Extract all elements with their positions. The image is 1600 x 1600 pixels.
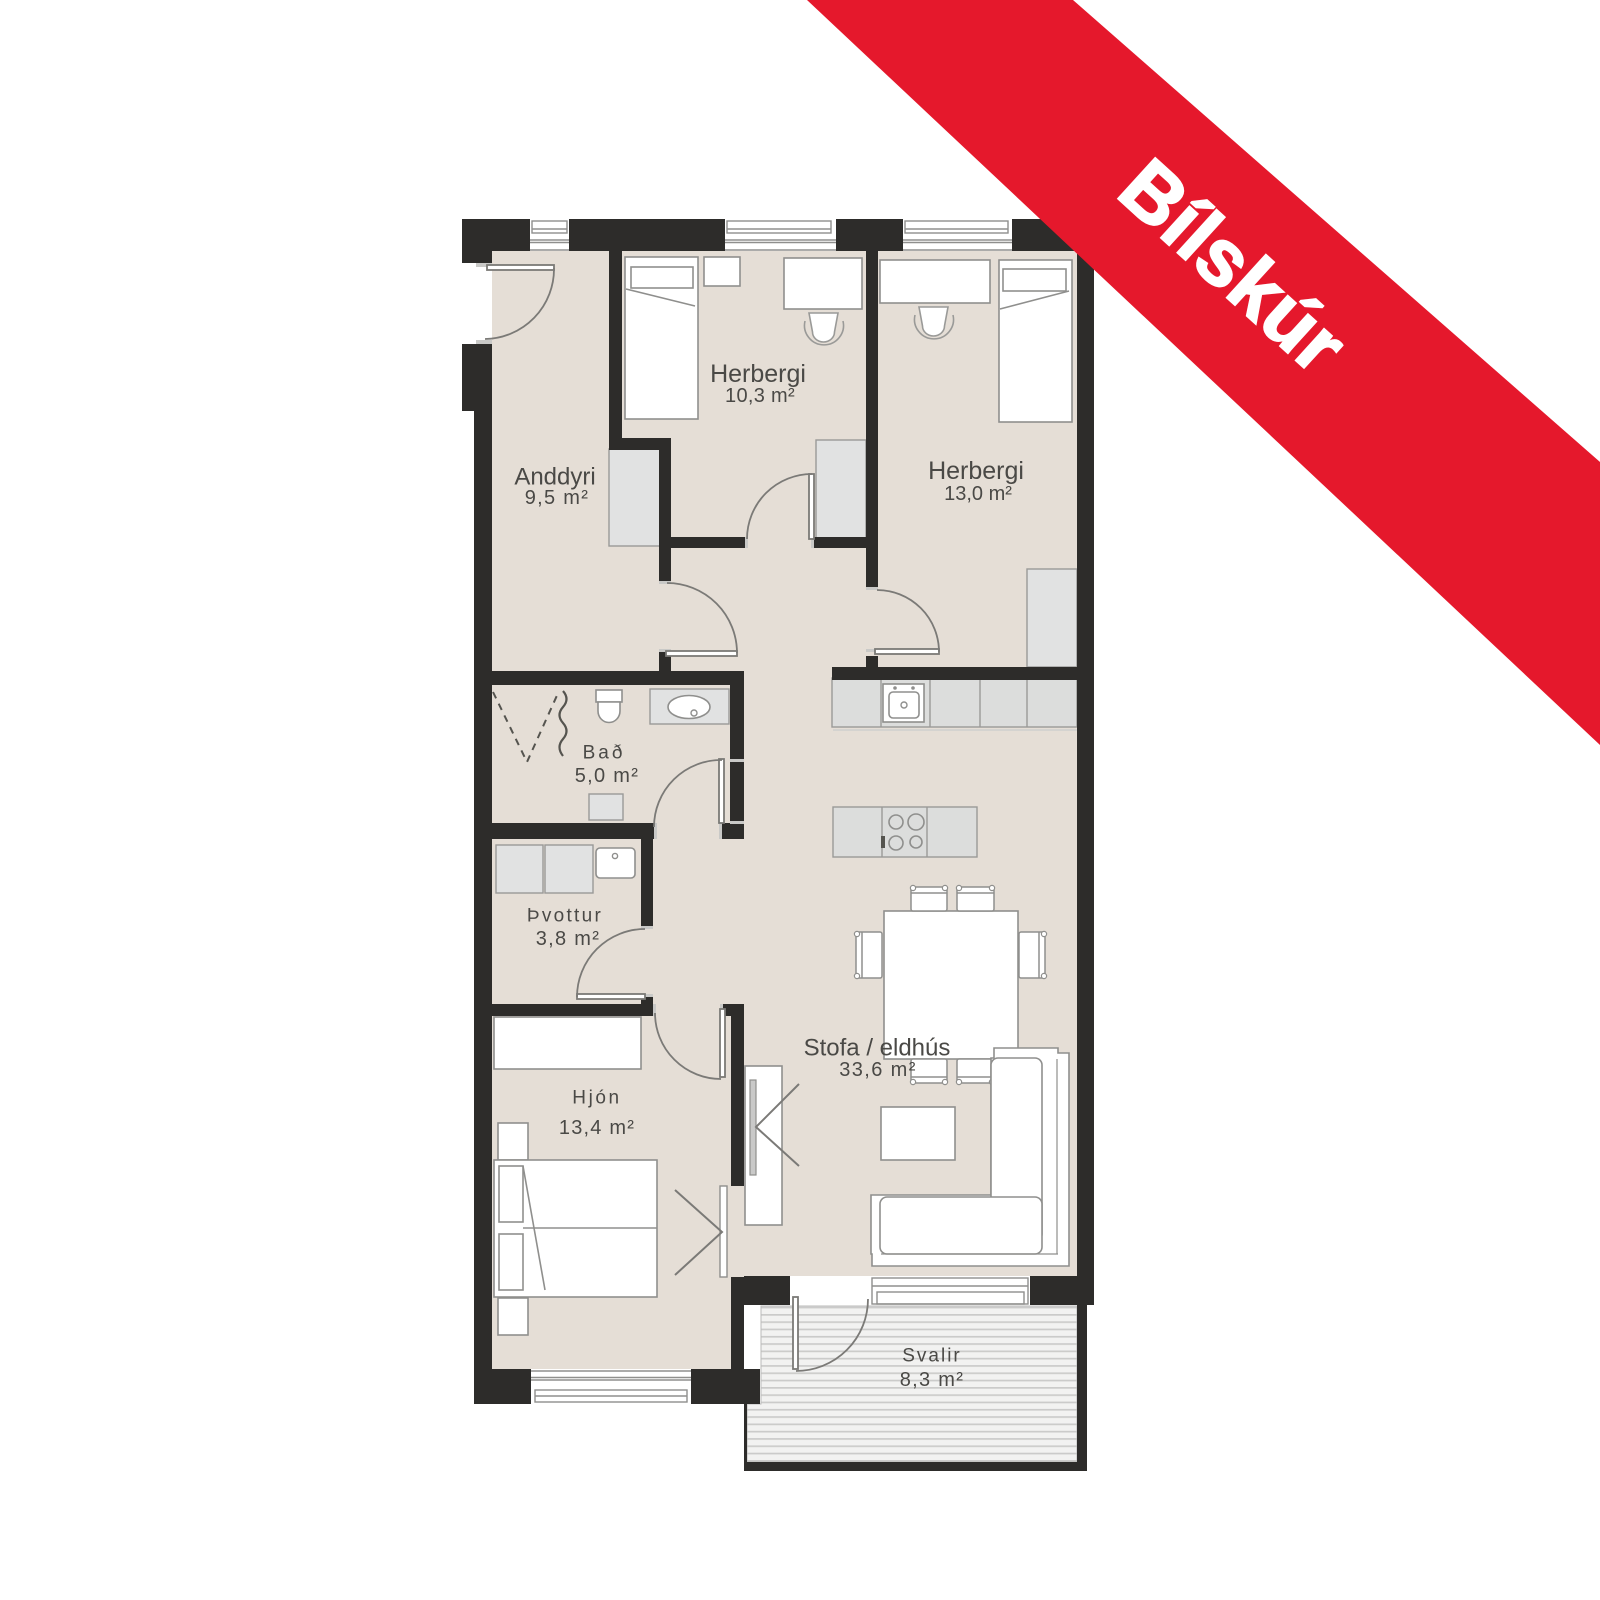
svg-text:9,5 m²: 9,5 m² xyxy=(525,487,589,509)
svg-text:Stofa / eldhús: Stofa / eldhús xyxy=(804,1035,951,1062)
svg-text:Hjón: Hjón xyxy=(572,1088,621,1109)
svg-text:Bað: Bað xyxy=(583,743,626,764)
svg-text:Þvottur: Þvottur xyxy=(527,906,603,927)
svg-text:13,0 m²: 13,0 m² xyxy=(944,483,1012,505)
svg-text:Svalir: Svalir xyxy=(902,1346,962,1367)
svg-text:10,3 m²: 10,3 m² xyxy=(725,385,795,407)
svg-text:Herbergi: Herbergi xyxy=(710,360,806,388)
svg-text:33,6 m²: 33,6 m² xyxy=(839,1059,917,1081)
svg-text:5,0 m²: 5,0 m² xyxy=(575,765,639,787)
svg-text:3,8 m²: 3,8 m² xyxy=(536,928,600,950)
svg-text:13,4 m²: 13,4 m² xyxy=(559,1117,635,1139)
svg-text:Herbergi: Herbergi xyxy=(928,457,1024,485)
svg-text:8,3 m²: 8,3 m² xyxy=(900,1369,964,1391)
